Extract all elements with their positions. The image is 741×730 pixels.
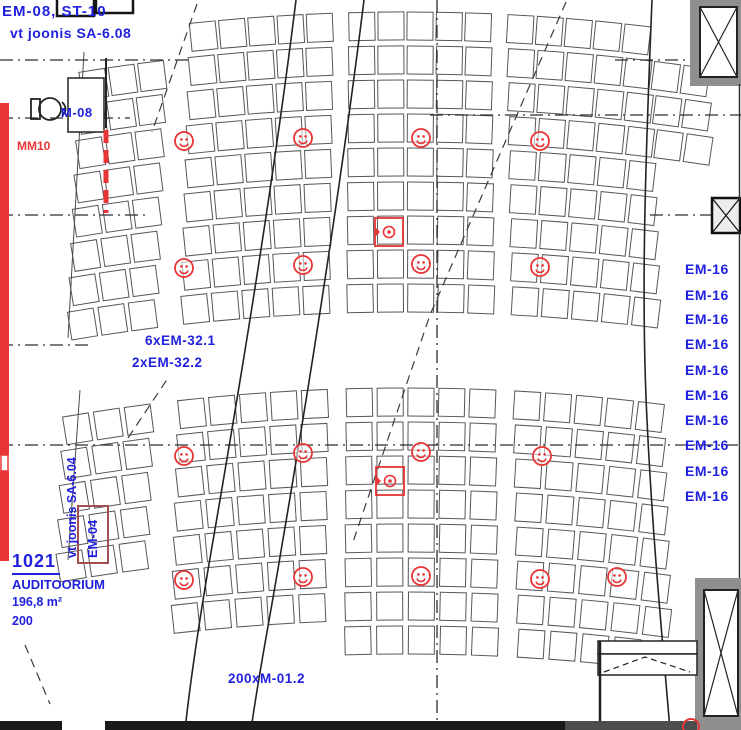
column-bottom-right: [695, 578, 741, 730]
speaker-symbol: [608, 568, 626, 586]
speaker-symbol: [412, 129, 430, 147]
ref-drawing-label-left: vt joonis SA-6.04: [66, 418, 80, 558]
speaker-symbol: [412, 443, 430, 461]
bottom-panel: [598, 641, 697, 722]
speaker-symbol: [175, 259, 193, 277]
speaker-symbol: [175, 132, 193, 150]
plan-linework: [0, 0, 741, 730]
em16-label: EM-16: [685, 412, 729, 428]
room-area: 196,8 m²: [12, 596, 62, 610]
em16-label: EM-16: [685, 311, 729, 327]
speaker-symbol: [412, 255, 430, 273]
speaker-symbol: [412, 567, 430, 585]
speaker-symbol: [294, 444, 312, 462]
em16-label: EM-16: [685, 287, 729, 303]
column-top-right: [690, 0, 741, 86]
speaker-symbol: [531, 258, 549, 276]
speaker-symbol: [294, 129, 312, 147]
speaker-symbol: [531, 132, 549, 150]
ref-label-top: EM-08, ST-10: [2, 4, 107, 21]
speaker-symbol: [294, 256, 312, 274]
em321-label: 6xEM-32.1: [145, 334, 216, 349]
ref-drawing-label-top: vt joonis SA-6.08: [10, 26, 131, 41]
m012-label: 200xM-01.2: [228, 672, 305, 687]
em16-label: EM-16: [685, 362, 729, 378]
m08-label: M-08: [61, 106, 93, 120]
em322-label: 2xEM-32.2: [132, 356, 203, 371]
speaker-symbol: [533, 447, 551, 465]
em16-label: EM-16: [685, 336, 729, 352]
em16-label: EM-16: [685, 387, 729, 403]
em16-label: EM-16: [685, 261, 729, 277]
em16-label: EM-16: [685, 463, 729, 479]
mm10-label: MM10: [17, 140, 50, 153]
speaker-symbol: [531, 570, 549, 588]
speaker-symbol: [175, 571, 193, 589]
column-right-mid: [712, 198, 740, 233]
em04-label: EM-04: [86, 508, 100, 558]
em16-label: EM-16: [685, 437, 729, 453]
room-number: 1021: [12, 552, 60, 575]
speaker-symbol: [175, 447, 193, 465]
room-capacity: 200: [12, 615, 33, 629]
em16-label: EM-16: [685, 488, 729, 504]
auditorium-floor-plan: EM-08, ST-10 vt joonis SA-6.08 M-08 MM10…: [0, 0, 741, 730]
speaker-symbol: [294, 568, 312, 586]
room-name: AUDITOORIUM: [12, 578, 105, 592]
